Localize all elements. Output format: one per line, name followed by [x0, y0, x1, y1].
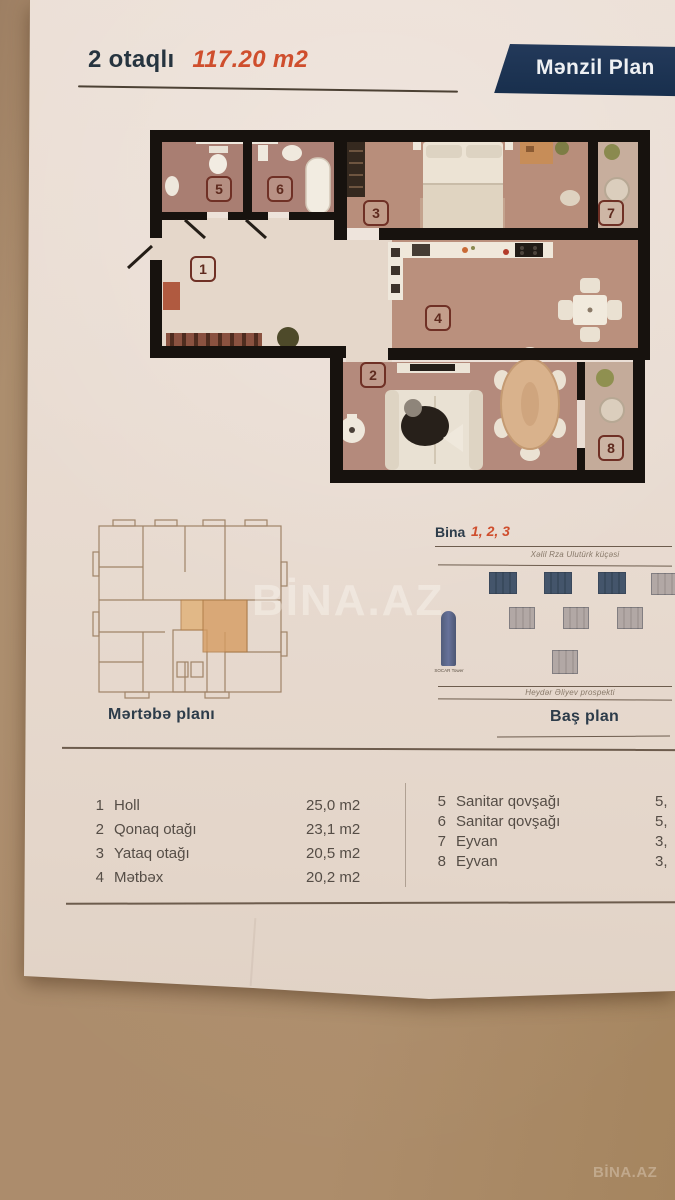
site-rule — [435, 546, 672, 547]
building-icon — [598, 572, 626, 594]
building-icon — [563, 607, 589, 629]
page-title: 2 otaqlı117.20 m2 — [88, 46, 308, 74]
wardrobe — [347, 142, 365, 197]
sofa — [385, 390, 483, 470]
legend-row: 7Eyvan 3, — [430, 833, 498, 850]
floor-plate-label: Mərtəbə planı — [108, 706, 215, 724]
legend-num: 7 — [430, 833, 446, 850]
legend-num: 3 — [88, 845, 104, 862]
round-chair — [600, 398, 624, 422]
legend-num: 8 — [430, 853, 446, 870]
plan-banner-label: Mənzil Plan — [536, 56, 675, 80]
armchair — [560, 190, 580, 206]
photo-background: 2 otaqlı117.20 m2 Mənzil Plan — [0, 0, 675, 1200]
building-icon — [617, 607, 643, 629]
legend-rule-bottom — [66, 901, 675, 905]
title-underline — [78, 85, 458, 92]
legend-name: Qonaq otağı — [114, 821, 197, 838]
legend-area: 5, — [655, 813, 668, 830]
room-badge-8: 8 — [598, 435, 624, 461]
legend-row: 2Qonaq otağı 23,1 m2 — [88, 821, 197, 838]
legend-name: Sanitar qovşağı — [456, 813, 560, 830]
site-rule — [438, 564, 672, 566]
room-badge-5: 5 — [206, 176, 232, 202]
legend-num: 4 — [88, 869, 104, 886]
room-badge-4: 4 — [425, 305, 451, 331]
highlighted-unit — [203, 600, 247, 652]
building-icon — [651, 573, 675, 595]
legend-rule-top — [62, 747, 675, 751]
round-chair — [605, 178, 629, 202]
washbasin — [282, 145, 302, 161]
building-icon — [544, 572, 572, 594]
plant — [555, 141, 569, 155]
legend-name: Eyvan — [456, 853, 498, 870]
site-plan-label: Baş plan — [550, 708, 619, 726]
apartment-floor-plan: 1 2 3 4 5 6 7 8 — [125, 118, 655, 488]
legend-name: Sanitar qovşağı — [456, 793, 560, 810]
bina-numbers: 1, 2, 3 — [471, 523, 510, 539]
site-plan-underline — [497, 736, 670, 738]
legend-row: 6Sanitar qovşağı 5, — [430, 813, 560, 830]
legend-row: 8Eyvan 3, — [430, 853, 498, 870]
legend-name: Holl — [114, 797, 140, 814]
legend-name: Eyvan — [456, 833, 498, 850]
legend-area: 3, — [655, 853, 668, 870]
legend-area: 25,0 m2 — [306, 797, 360, 814]
legend-area: 20,2 m2 — [306, 869, 360, 886]
watermark-center: BİNA.AZ — [252, 576, 444, 626]
legend-row: 3Yataq otağı 20,5 m2 — [88, 845, 190, 862]
bed — [413, 142, 513, 236]
building-icon — [552, 650, 578, 674]
legend-row: 1Holl 25,0 m2 — [88, 797, 140, 814]
watermark-corner: BİNA.AZ — [593, 1164, 657, 1181]
dresser — [520, 142, 553, 164]
legend-num: 5 — [430, 793, 446, 810]
bina-label: Bina — [435, 524, 465, 540]
legend-area: 3, — [655, 833, 668, 850]
tower-label: SOCAR Tower — [428, 668, 469, 673]
cabinet — [258, 145, 268, 161]
paper-crease — [250, 918, 257, 986]
kitchen-counter — [403, 242, 553, 258]
room-badge-3: 3 — [363, 200, 389, 226]
bathtub — [306, 158, 330, 214]
legend-name: Yataq otağı — [114, 845, 190, 862]
washbasin — [165, 176, 179, 196]
legend-num: 1 — [88, 797, 104, 814]
rooms-count-label: 2 otaqlı — [88, 46, 174, 73]
room-badge-7: 7 — [598, 200, 624, 226]
plant — [604, 144, 620, 160]
site-rule — [438, 686, 672, 687]
room-badge-1: 1 — [190, 256, 216, 282]
legend-area: 23,1 m2 — [306, 821, 360, 838]
floor-plan-drawing — [125, 118, 655, 488]
legend-num: 2 — [88, 821, 104, 838]
legend-row: 5Sanitar qovşağı 5, — [430, 793, 560, 810]
toilet — [209, 146, 228, 174]
legend-area: 20,5 m2 — [306, 845, 360, 862]
building-icon — [509, 607, 535, 629]
legend-num: 6 — [430, 813, 446, 830]
total-area-label: 117.20 m2 — [192, 46, 308, 73]
legend-divider — [405, 783, 406, 887]
tv-console — [397, 363, 470, 373]
room-badge-6: 6 — [267, 176, 293, 202]
hall-cabinet — [163, 282, 180, 310]
plant — [596, 369, 614, 387]
building-icon — [489, 572, 517, 594]
kitchen-cabinet — [388, 242, 403, 300]
street-bottom-label: Heydər Əliyev prospekti — [470, 688, 670, 697]
room-badge-2: 2 — [360, 362, 386, 388]
street-top-label: Xəlil Rza Ulutürk küçəsi — [475, 550, 675, 559]
site-rule — [438, 698, 672, 700]
legend-name: Mətbəx — [114, 869, 163, 886]
plant — [277, 327, 299, 349]
legend-row: 4Mətbəx 20,2 m2 — [88, 869, 163, 886]
legend-area: 5, — [655, 793, 668, 810]
